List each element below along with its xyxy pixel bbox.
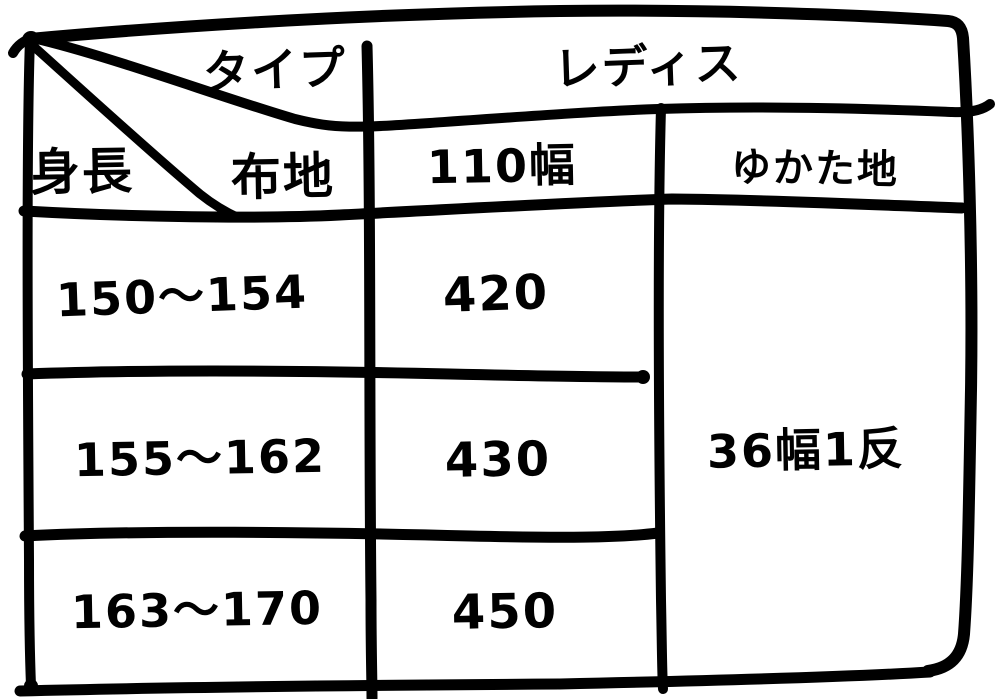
header-sweep-line [33, 38, 990, 127]
row-divider-2-end-blob [653, 528, 665, 540]
row-divider-2 [25, 532, 658, 537]
cell-height-row3: 163〜170 [71, 585, 324, 635]
bottom-left-junction-blob [24, 679, 38, 693]
corner-label-type: タイプ [202, 45, 348, 96]
header-bottom-line [24, 199, 962, 217]
cell-110-row3: 450 [451, 587, 558, 637]
row-divider-1-end-cap [636, 370, 650, 384]
col-header-yukata: ゆかた地 [731, 148, 900, 191]
col-header-110width: 110幅 [427, 142, 578, 191]
cell-height-row2: 155〜162 [74, 433, 327, 483]
cell-yukata-merged: 36幅1反 [707, 425, 906, 474]
cell-110-row1: 420 [442, 268, 550, 320]
group-header-ladies: レディス [553, 40, 743, 93]
corner-label-height: 身長 [30, 146, 135, 198]
cell-height-row1: 150〜154 [55, 269, 308, 324]
handwritten-table: タイプ 布地 身長 レディス 110幅 ゆかた地 150〜154 420 155… [0, 0, 999, 699]
cell-110-row2: 430 [444, 435, 551, 485]
bottom-border [20, 672, 930, 691]
corner-label-fabric: 布地 [231, 151, 336, 203]
row-divider-1 [27, 371, 643, 377]
left-border [28, 39, 31, 686]
